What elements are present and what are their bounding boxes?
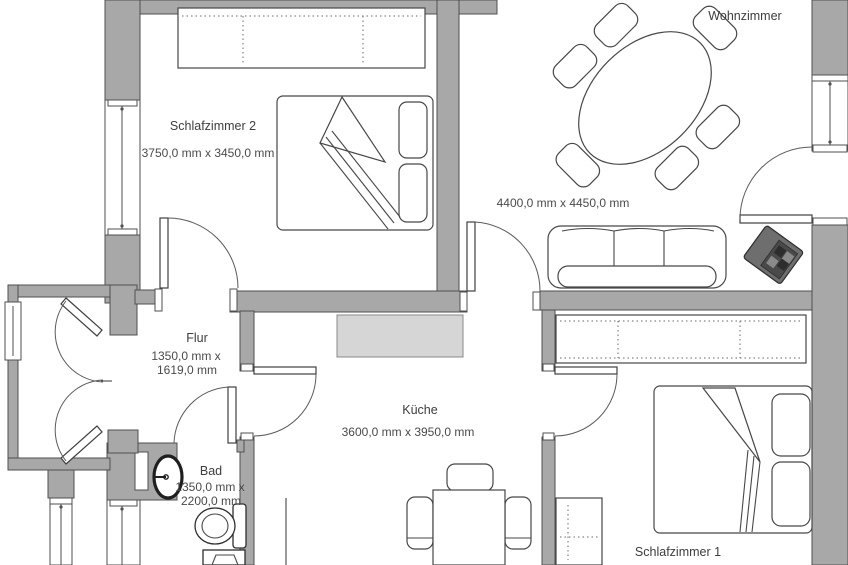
door-bad [174, 387, 236, 443]
door-wohnzimmer-kueche [460, 222, 540, 311]
wall-left-upper [105, 0, 140, 100]
bidet [203, 550, 245, 565]
chair [407, 497, 433, 549]
door-kueche [241, 364, 316, 440]
window-wohnzimmer [812, 75, 848, 151]
dims-schlafzimmer2: 3750,0 mm x 3450,0 mm [142, 146, 275, 160]
wall-divider-k-sz1-lower [542, 437, 555, 565]
door-schlafzimmer2 [155, 218, 238, 311]
kitchen-counter [337, 315, 463, 357]
dims-bad-line1: 1350,0 mm x [175, 480, 244, 494]
chair [505, 497, 531, 549]
label-wohnzimmer: Wohnzimmer [708, 9, 781, 23]
wall-bad-hinge-stub [237, 440, 244, 452]
wardrobe-schlafzimmer1 [556, 315, 806, 363]
schlafzimmer1-furniture [556, 315, 812, 565]
window-bad [107, 500, 140, 565]
sofa-seat [558, 266, 716, 287]
dims-bad-line2: 2200,0 mm [181, 494, 241, 508]
wall-divider-sz2-wz [437, 0, 459, 293]
chair [447, 464, 493, 491]
pillow [399, 164, 427, 222]
wall-flur-corner [110, 285, 137, 335]
door-wohnzimmer-right [740, 145, 847, 225]
dims-flur-line2: 1619,0 mm [157, 363, 217, 377]
door-schlafzimmer1 [543, 364, 617, 440]
speaker [743, 225, 804, 284]
kueche-furniture [286, 315, 531, 565]
pillow [399, 102, 427, 158]
wall-divider-flur-k [240, 311, 254, 371]
label-flur: Flur [186, 331, 208, 345]
door-annex-double [55, 298, 112, 464]
wall-annex-right-stub [108, 430, 138, 453]
wohnzimmer-furniture [507, 0, 804, 288]
dresser-schlafzimmer1 [556, 498, 602, 565]
pillow [772, 394, 810, 456]
floor-plan-canvas: Wohnzimmer 4400,0 mm x 4450,0 mm Schlafz… [0, 0, 848, 565]
kitchen-table [433, 490, 505, 565]
label-kueche: Küche [402, 403, 437, 417]
toilet [195, 504, 246, 548]
window-below-annex [50, 498, 72, 565]
wall-annex-bottom [8, 458, 110, 470]
label-schlafzimmer2: Schlafzimmer 2 [170, 119, 256, 133]
wall-annex-down-stub [48, 470, 74, 498]
wall-annex-top [8, 285, 110, 297]
kitchen-table-set [407, 464, 531, 565]
floor-plan: Wohnzimmer 4400,0 mm x 4450,0 mm Schlafz… [0, 0, 848, 565]
bed-schlafzimmer2 [277, 96, 433, 230]
wall-right-lower [812, 225, 848, 565]
wall-right-upper [812, 0, 848, 75]
pillow [772, 462, 810, 526]
window-annex [5, 302, 21, 360]
sofa [548, 226, 726, 288]
dims-wohnzimmer: 4400,0 mm x 4450,0 mm [497, 196, 630, 210]
dims-flur-line1: 1350,0 mm x [151, 349, 220, 363]
wardrobe-schlafzimmer2 [178, 8, 425, 68]
wall-divider-k-sz1-upper [542, 310, 555, 371]
label-schlafzimmer1: Schlafzimmer 1 [635, 545, 721, 559]
wall-mid-left [230, 291, 467, 312]
bed-schlafzimmer1 [654, 386, 812, 533]
dims-kueche: 3600,0 mm x 3950,0 mm [342, 425, 475, 439]
window-schlafzimmer2 [105, 100, 140, 235]
label-bad: Bad [200, 464, 222, 478]
wall-shaft-recess [135, 452, 148, 490]
wall-mid-right [540, 291, 812, 310]
